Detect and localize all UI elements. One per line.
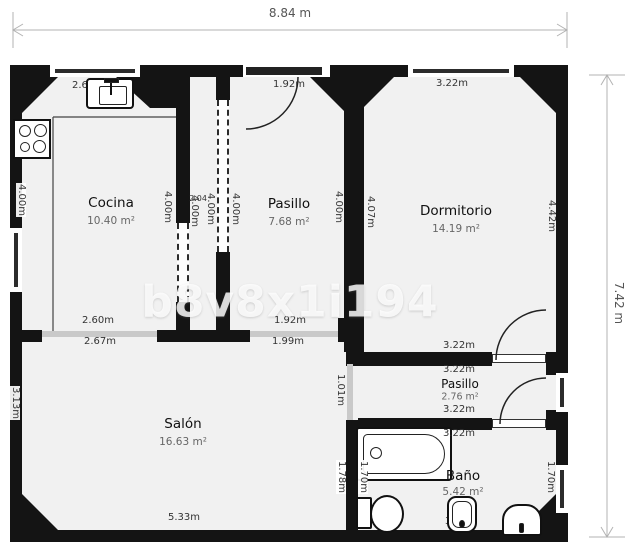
- room-name-dormitorio: Dormitorio: [420, 203, 492, 219]
- bidet-drain: [459, 520, 465, 528]
- dim-hall2-below: 3.22m: [443, 429, 475, 439]
- hall2-window: [556, 373, 568, 412]
- room-area-cocina: 10.40 m²: [87, 215, 135, 227]
- room-name-pasillo: Pasillo: [268, 196, 310, 212]
- hall-left-wall-stub: [216, 77, 230, 100]
- room-area-dormitorio: 14.19 m²: [432, 223, 480, 235]
- dim-bathroom-window: 1.70m: [545, 461, 555, 493]
- burner-3: [20, 142, 30, 152]
- bedroom-window-glazing: [413, 69, 509, 73]
- room-area-bano: 5.42 m²: [442, 486, 483, 498]
- room-area-salon: 16.63 m²: [159, 436, 207, 448]
- bathtub: [356, 427, 452, 481]
- dim-divider-c: 4.00m: [205, 193, 215, 225]
- bidet: [447, 496, 477, 533]
- kitchen-window: [50, 65, 140, 77]
- salon-right-wall-upper: [346, 340, 358, 364]
- dim-divider-b: 4.00m: [189, 195, 199, 227]
- bedroom-window: [408, 65, 514, 77]
- room-area-pasillo2: 2.76 m²: [441, 392, 478, 403]
- burner-2: [34, 124, 47, 137]
- dim-kitchen-opening-bottom: 2.67m: [84, 337, 116, 347]
- hinge-post-upper: [546, 366, 556, 375]
- bathroom-window: [556, 465, 568, 513]
- toilet-bowl: [370, 495, 404, 533]
- watermark: b8v8x1i194: [141, 277, 438, 328]
- mid-wall-center: [157, 330, 250, 342]
- wall-bottom: [10, 530, 568, 542]
- entrance-door-leaf: [246, 67, 322, 75]
- kitchen-side-window: [10, 228, 22, 292]
- bathroom-door-leaf: [492, 419, 546, 428]
- burner-1: [19, 125, 31, 137]
- bedroom-bottom-wall-right: [546, 352, 568, 366]
- kitchen-side-window-glazing: [14, 233, 18, 287]
- dim-salon-opening-bottom: 1.99m: [272, 337, 304, 347]
- dim-kitchen-left: 4.00m: [16, 183, 26, 217]
- dim-salon-left: 3.13m: [10, 386, 20, 420]
- dim-bedroom-left: 4.07m: [365, 196, 375, 228]
- washbasin-faucet: [519, 523, 524, 533]
- floor-plan: 8.84 m 7.42 m Cocina 10.40 m² Pasillo 7.…: [0, 0, 641, 548]
- washbasin: [502, 504, 542, 536]
- dim-hall2-above: 3.22m: [443, 405, 475, 415]
- bathroom-window-glazing: [560, 470, 564, 508]
- room-name-salon: Salón: [164, 416, 201, 432]
- hall2-window-glazing: [560, 378, 564, 407]
- dim-bedroom-bottom-below: 3.22m: [443, 365, 475, 375]
- salon-hall2-opening: [347, 364, 353, 420]
- overall-width-label: 8.84 m: [269, 6, 311, 20]
- room-name-bano: Baño: [446, 468, 480, 484]
- room-name-cocina: Cocina: [88, 195, 134, 211]
- dim-entry: 1.92m: [273, 80, 305, 90]
- hinge-post-lower: [546, 410, 556, 420]
- bedroom-door-leaf: [492, 354, 546, 363]
- dim-salon-hall2-opening: 1.01m: [335, 374, 345, 406]
- burner-4: [33, 140, 46, 153]
- kitchen-divider-top-block: [150, 65, 190, 108]
- bathtub-drain: [370, 447, 382, 459]
- kitchen-sink-faucet-stem: [110, 83, 112, 95]
- overall-height-label: 7.42 m: [612, 282, 626, 324]
- dim-divider-a: 4.00m: [162, 191, 172, 223]
- mid-wall-left-stub: [22, 330, 42, 342]
- stove: [13, 119, 51, 159]
- dim-kitchen-opening-top: 2.60m: [82, 316, 114, 326]
- dim-bedroom-bottom-above: 3.22m: [443, 341, 475, 351]
- room-area-pasillo: 7.68 m²: [268, 216, 309, 228]
- dim-bathtub: 1.70m: [358, 460, 368, 494]
- dim-divider-d: 4.00m: [230, 193, 240, 225]
- kitchen-right-wall-upper: [176, 108, 190, 223]
- kitchen-sink-basin: [99, 86, 127, 105]
- room-name-pasillo2: Pasillo: [441, 377, 479, 391]
- dim-salon-bottom: 5.33m: [168, 513, 200, 523]
- hall-left-wall-dashed: [217, 100, 229, 252]
- dim-salon-bathroom: 1.78m: [336, 460, 346, 494]
- dim-hall-right: 4.00m: [333, 191, 343, 223]
- kitchen-window-glazing: [55, 69, 135, 73]
- dim-bedroom-right: 4.42m: [546, 200, 556, 232]
- kitchen-sink: [86, 78, 134, 109]
- dim-bedroom-window: 3.22m: [436, 79, 468, 89]
